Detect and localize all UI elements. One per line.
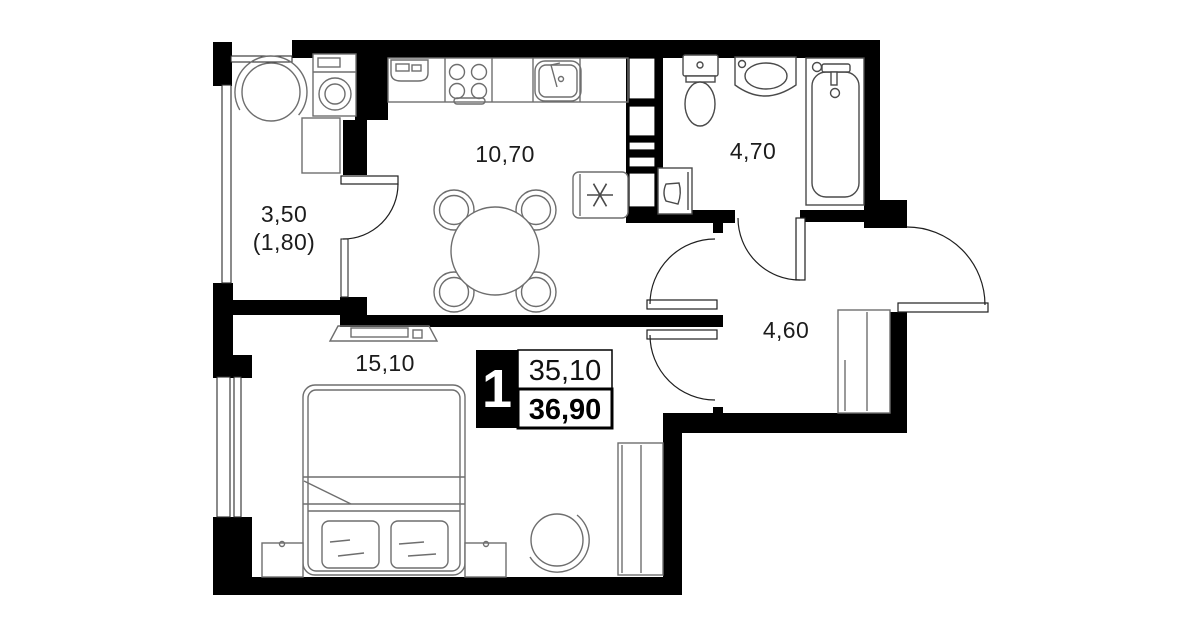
washing-machine-tray <box>318 58 340 67</box>
kitchen-door-leaf <box>647 300 717 309</box>
entrance-door-arc <box>907 227 985 305</box>
floor-plan: 3,50 (1,80) 10,70 4,70 4,60 15,10 1 35,1… <box>0 0 1201 630</box>
badge-total-area: 36,90 <box>529 394 602 426</box>
wall <box>215 300 340 315</box>
wall <box>663 413 682 577</box>
burner <box>472 65 487 80</box>
washbasin-icon <box>735 57 796 96</box>
wall <box>713 214 723 233</box>
wardrobe-icon <box>618 443 663 575</box>
wall <box>213 355 252 378</box>
appliance-slot <box>412 65 421 71</box>
wall <box>864 58 880 210</box>
wall <box>890 312 907 433</box>
shaft-duct <box>629 157 655 167</box>
kitchen-door-arc <box>650 239 715 304</box>
wall <box>800 210 880 222</box>
wall <box>213 517 252 579</box>
stove-icon <box>450 65 487 105</box>
washer-body <box>658 168 692 214</box>
bathtub-inner <box>812 72 859 197</box>
kitchen-area-label: 10,70 <box>475 141 535 167</box>
balcony-area-label: 3,50 <box>261 201 307 227</box>
toilet-bowl <box>685 82 715 126</box>
toilet-icon <box>683 55 718 126</box>
wall <box>292 40 880 58</box>
nightstand-icon <box>262 542 303 578</box>
hallway-furniture <box>838 310 890 413</box>
appliance-slot <box>396 64 409 71</box>
sink-faucet <box>551 63 560 87</box>
bedroom-door-leaf <box>647 330 717 339</box>
wall <box>355 58 388 120</box>
shaft-duct <box>629 173 655 207</box>
wardrobe-icon <box>838 310 890 413</box>
bedroom-window <box>217 377 230 517</box>
badge-rooms-count: 1 <box>482 359 512 419</box>
wall <box>340 315 723 327</box>
hallway-area-label: 4,60 <box>763 317 809 343</box>
kitchen-furniture <box>388 58 628 312</box>
bathroom-door-leaf <box>796 218 805 280</box>
bathroom-area-label: 4,70 <box>730 138 776 164</box>
armchair-icon <box>242 63 300 121</box>
nightstand-icon <box>465 542 506 578</box>
tv-icon <box>330 326 437 341</box>
tv-box <box>413 330 422 338</box>
nightstand-body <box>262 543 303 577</box>
bedroom-window-frame <box>234 377 241 517</box>
dining-table-icon <box>451 207 539 295</box>
bathroom-fixtures <box>658 55 864 214</box>
nightstand-body <box>465 543 506 577</box>
tv-screen <box>351 328 408 337</box>
toilet-tank <box>683 55 718 76</box>
balcony-door-leaf <box>341 176 398 184</box>
washing-machine-icon <box>313 54 356 116</box>
bedroom-door-arc <box>650 335 715 400</box>
hall-wardrobe-body <box>838 310 890 413</box>
shaft-duct <box>629 106 655 136</box>
wall <box>713 407 723 417</box>
balcony-glazing-left <box>222 85 231 283</box>
sink-inner <box>539 65 577 97</box>
pillow <box>322 521 379 568</box>
toilet-seat-hinge <box>686 76 715 82</box>
burner <box>450 65 465 80</box>
burner <box>472 84 487 99</box>
balcony-door-arc <box>343 184 398 239</box>
entrance-door-leaf <box>898 303 988 312</box>
cabinet-icon <box>302 118 340 173</box>
sink-drain <box>559 77 564 82</box>
burner <box>450 84 465 99</box>
unit-badge: 1 35,10 36,90 <box>476 350 612 428</box>
shaft-duct <box>629 58 655 99</box>
wall <box>213 577 682 595</box>
small-appliance-icon <box>391 60 428 81</box>
washer-icon <box>658 168 692 214</box>
chair-seat <box>531 514 583 566</box>
balcony-partition <box>341 239 348 297</box>
badge-living-area: 35,10 <box>529 355 602 387</box>
balcony-reduced-area-label: (1,80) <box>253 229 315 255</box>
round-chair-icon <box>530 514 589 572</box>
pillow-icon <box>391 521 448 568</box>
kitchen-sink-icon <box>535 61 581 101</box>
bed-icon <box>303 385 465 575</box>
bathroom-door-arc <box>738 218 800 280</box>
wall <box>663 413 907 433</box>
pillow-icon <box>322 521 379 568</box>
bedroom-area-label: 15,10 <box>355 350 415 376</box>
balcony-furniture <box>235 54 356 173</box>
wall <box>343 120 367 175</box>
shaft-duct <box>629 142 655 150</box>
wall <box>213 42 232 86</box>
bathtub-faucet <box>822 64 850 72</box>
fridge-icon <box>573 172 628 218</box>
dining-set-icon <box>434 190 556 312</box>
bathtub-spout <box>831 72 837 85</box>
bathtub-icon <box>806 58 864 205</box>
